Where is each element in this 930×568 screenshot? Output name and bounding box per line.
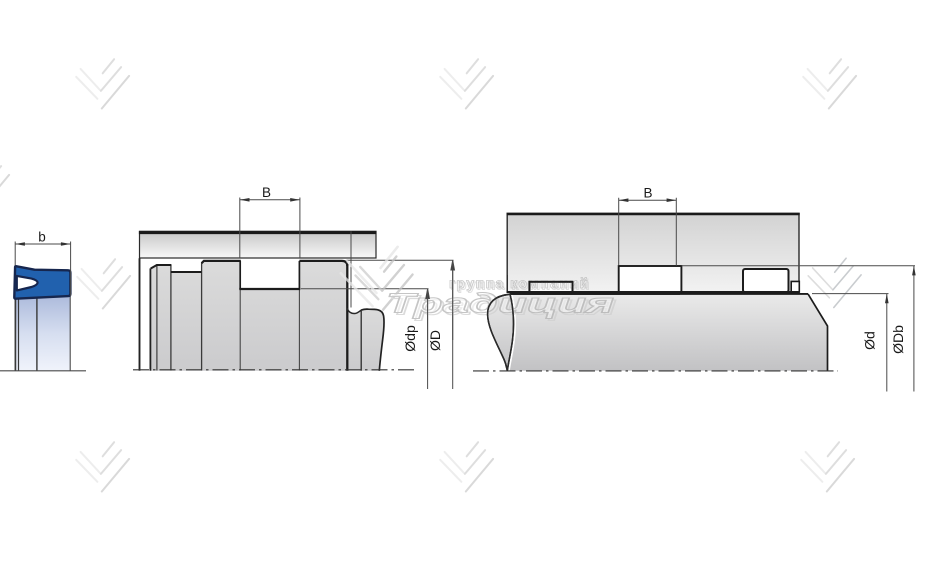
svg-text:ØDb: ØDb bbox=[890, 325, 906, 354]
svg-text:ØD: ØD bbox=[427, 330, 443, 351]
svg-text:B: B bbox=[262, 185, 271, 200]
svg-text:Ød: Ød bbox=[862, 331, 878, 350]
svg-text:B: B bbox=[643, 186, 652, 201]
svg-text:Ødp: Ødp bbox=[402, 325, 418, 352]
svg-text:b: b bbox=[38, 230, 46, 245]
